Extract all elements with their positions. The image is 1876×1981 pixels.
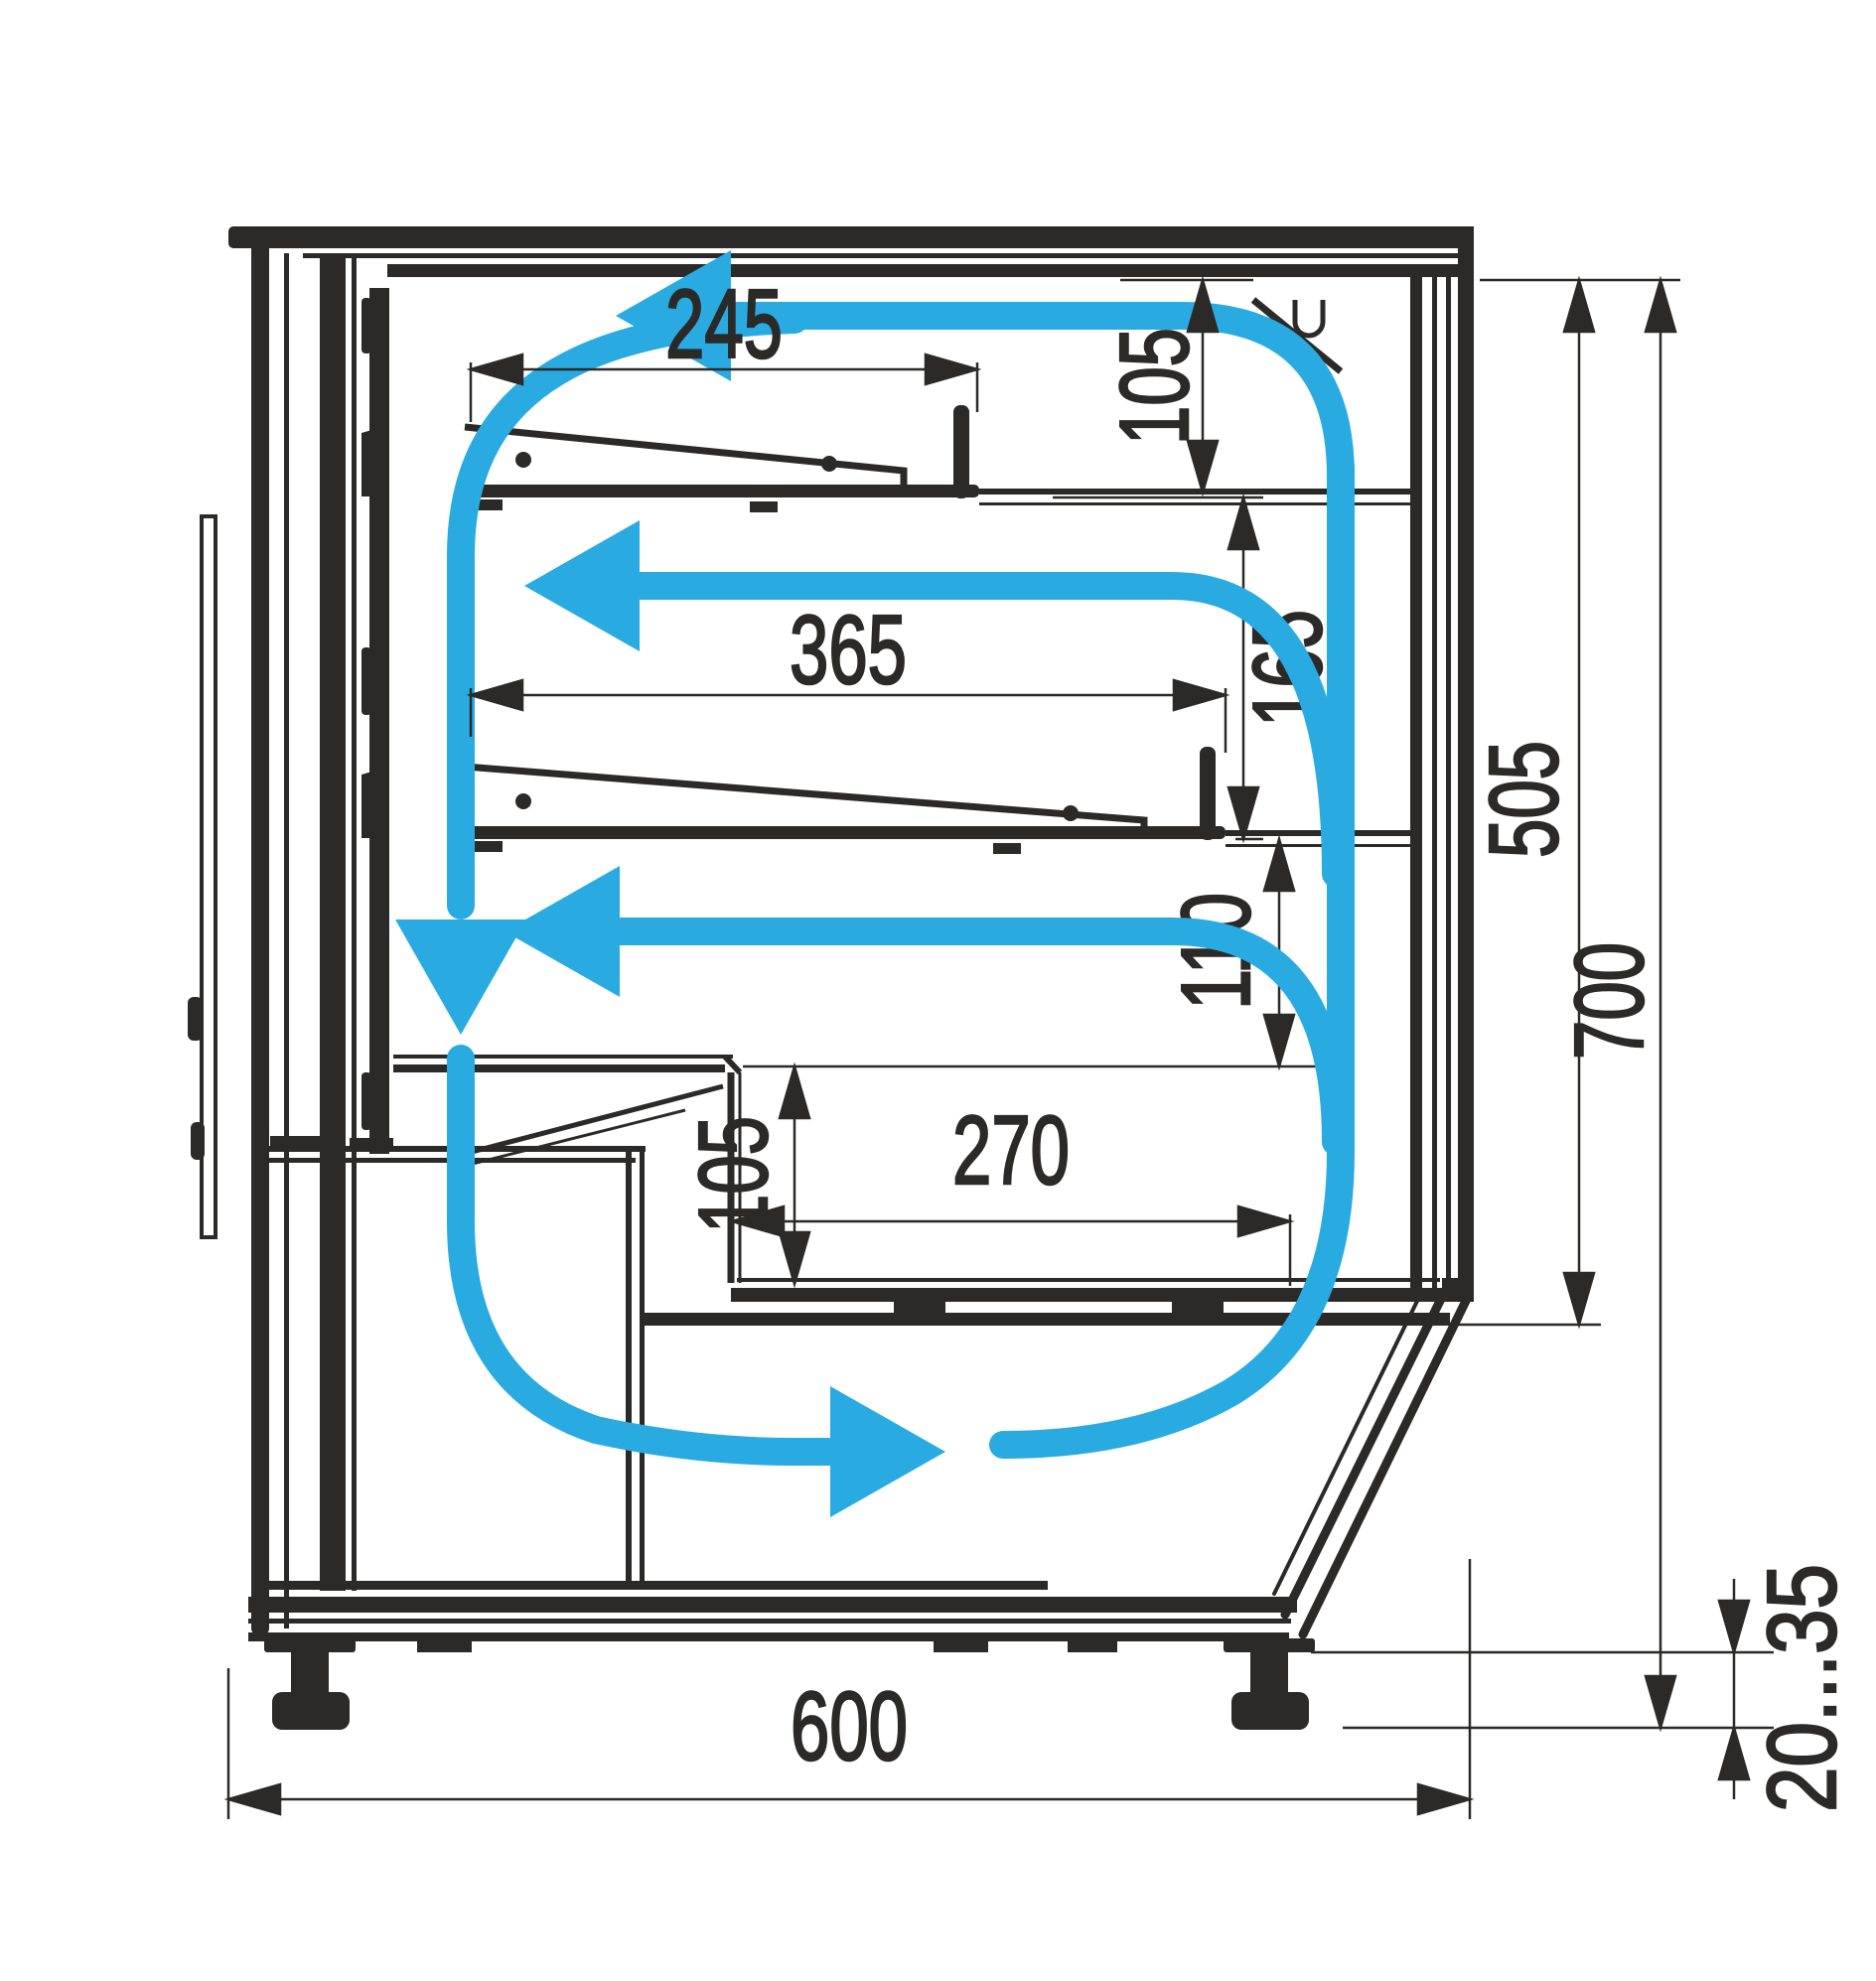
top-frame — [228, 226, 1474, 277]
dim-label-270: 270 — [952, 1095, 1070, 1204]
dim-well-length: 270 — [732, 1095, 1290, 1286]
airflow-arrowhead-bottom-right-icon — [830, 1386, 945, 1517]
dim-label-365: 365 — [790, 595, 907, 704]
dim-shelf1-length: 245 — [471, 269, 977, 422]
dim-label-20-35: 20...35 — [1747, 1564, 1856, 1812]
shelf-2-rail — [1226, 830, 1410, 836]
display-case-section-drawing: 110 165 — [0, 0, 1876, 1981]
dim-label-245: 245 — [665, 269, 783, 378]
dim-label-105-top: 105 — [1099, 328, 1209, 445]
base — [248, 1581, 1297, 1652]
left-foot — [264, 1638, 356, 1730]
dim-inner-height: 505 — [1456, 280, 1680, 1325]
dim-well-depth: 105 — [678, 1066, 809, 1284]
drawing-canvas: 110 165 — [0, 0, 1876, 1981]
airflow-arrowhead-mid-lower-icon — [505, 866, 620, 997]
shelf-1-price-lip — [953, 405, 969, 498]
dim-foot-range: 20...35 — [1311, 1564, 1856, 1812]
right-foot — [1224, 1638, 1315, 1730]
well-floor — [644, 1278, 1474, 1326]
dim-label-600: 600 — [791, 1671, 908, 1780]
front-glass — [1410, 226, 1474, 1301]
airflow-arrowhead-down-icon — [395, 920, 526, 1035]
dim-label-700: 700 — [1554, 942, 1663, 1060]
airflow-arrowhead-mid-upper-icon — [524, 520, 640, 651]
shelf-2-price-lip — [1200, 747, 1216, 840]
dim-label-505: 505 — [1469, 741, 1578, 858]
rear-cover — [188, 516, 216, 1237]
dim-overall-height: 700 — [1343, 280, 1774, 1728]
